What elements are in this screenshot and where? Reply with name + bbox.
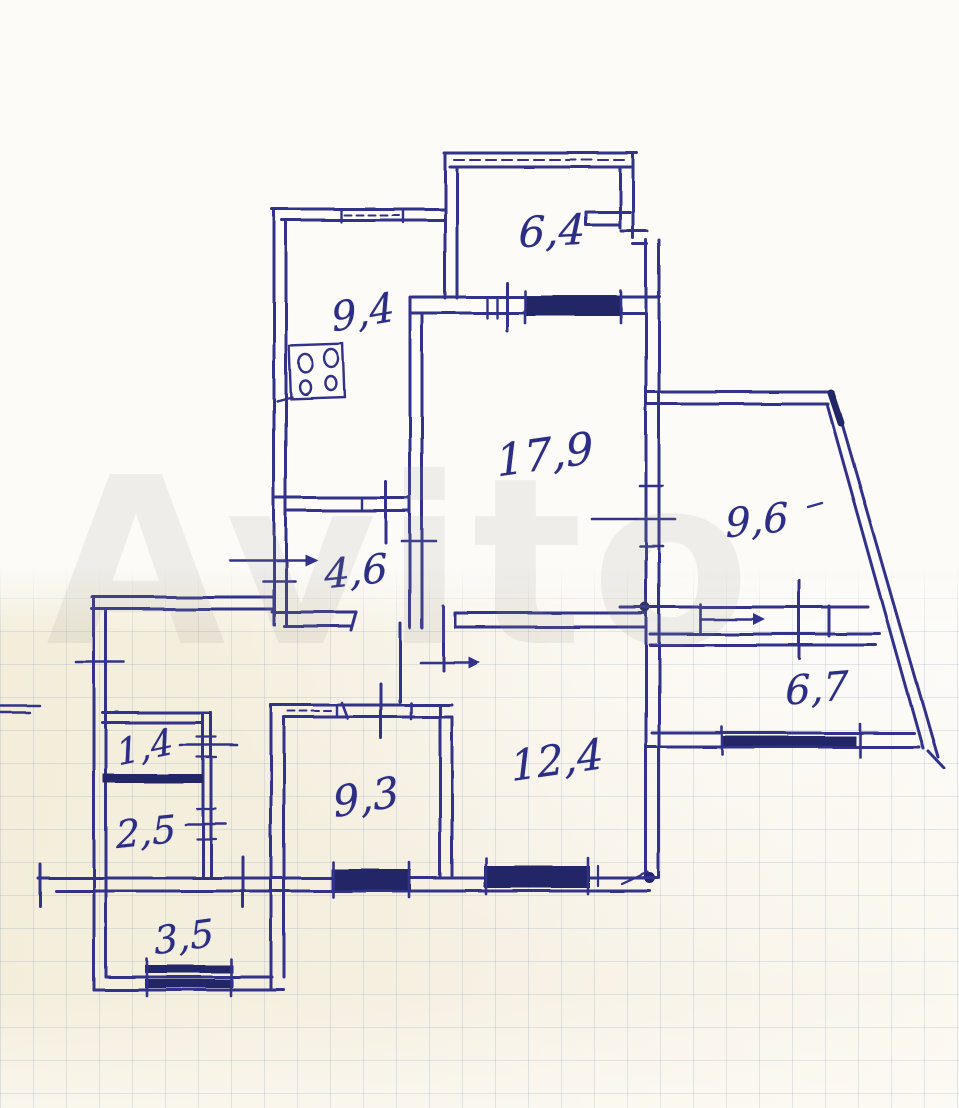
room-area-label-balcony: 6,4 [518,205,586,258]
entry-wall [38,857,658,907]
window-bar [525,296,621,316]
room-area-label-hallway: 4,6 [324,546,389,599]
wall-divider [103,774,203,783]
window-bar [331,869,411,890]
corridor-top-wall [400,606,646,702]
room-area-label-room-upper-right: 9,6 [725,495,790,548]
corridor-door-arrow [420,656,480,668]
lower-left-block-walls [0,597,284,996]
room-area-label-storeroom: 3,5 [153,911,216,963]
living-room-left-wall [402,297,436,628]
room-area-label-bathroom: 2,5 [115,807,177,857]
room-area-label-room-lower-right: 6,7 [785,663,849,715]
window-bar [722,736,856,746]
living-room-top-wall [412,283,660,331]
window-bar [145,979,233,988]
room-9-6-walls [620,392,938,757]
main-right-wall [592,240,675,884]
window-bar [484,866,590,888]
floorplan-drawing [0,0,959,1108]
window-bar [145,965,233,973]
floorplan-sketch-photo: 6,4 9,4 17,9 9,6 4,6 6,7 12,4 1,4 2,5 9,… [0,0,959,1108]
